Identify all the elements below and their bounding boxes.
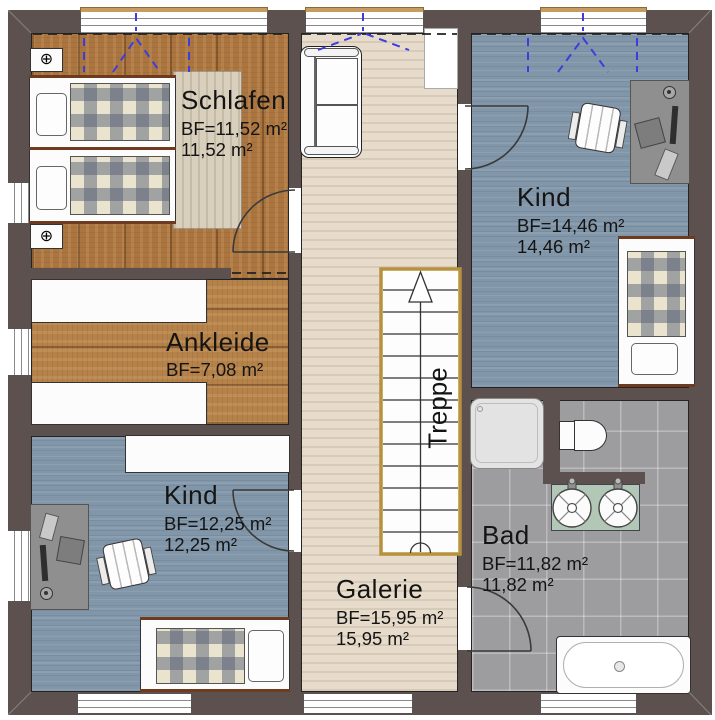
wall-bad-stub-vertical bbox=[543, 400, 560, 477]
sofa-cushion bbox=[316, 105, 358, 152]
door-opening-bad[interactable] bbox=[458, 587, 471, 650]
window-bottom-bad[interactable] bbox=[540, 694, 637, 713]
bed-rail bbox=[29, 75, 176, 78]
desk-lamp-icon bbox=[663, 86, 676, 99]
room-label-kind-bottom-left: Kind BF=12,25 m² 12,25 m² bbox=[164, 481, 271, 556]
blanket bbox=[627, 251, 686, 337]
mattress bbox=[70, 156, 170, 215]
room-bf: BF=14,46 m² bbox=[517, 215, 624, 236]
bed-rail bbox=[29, 221, 176, 224]
window-bottom-kind[interactable] bbox=[77, 694, 192, 713]
sofa-armrest bbox=[304, 48, 359, 57]
shower[interactable] bbox=[470, 398, 544, 469]
door-opening-schlafen[interactable] bbox=[289, 188, 301, 253]
window-bottom-galerie[interactable] bbox=[303, 694, 413, 713]
bathtub-drain-icon bbox=[614, 661, 625, 672]
room-name: Kind bbox=[164, 481, 271, 509]
room-bf: BF=12,25 m² bbox=[164, 513, 271, 534]
sofa-armrest bbox=[304, 146, 359, 155]
wall-bad-stub-horizontal bbox=[543, 472, 645, 484]
office-chair[interactable] bbox=[566, 96, 631, 161]
room-label-ankleide: Ankleide BF=7,08 m² bbox=[166, 328, 270, 380]
bed-rail bbox=[618, 236, 695, 239]
door-opening-kind-bottom-left[interactable] bbox=[289, 490, 301, 552]
room-bf: BF=7,08 m² bbox=[166, 359, 270, 380]
window-top-schlafen[interactable] bbox=[80, 12, 268, 33]
lamp-icon: ⊕ bbox=[40, 51, 53, 68]
office-chair[interactable] bbox=[93, 531, 159, 597]
room-name: Galerie bbox=[336, 575, 443, 603]
stairs-label: Treppe bbox=[423, 367, 454, 448]
sofa-cushion bbox=[316, 58, 358, 105]
nightstand[interactable]: ⊕ bbox=[30, 48, 63, 72]
room-bf: BF=11,52 m² bbox=[181, 118, 287, 139]
room-area: 11,82 m² bbox=[482, 574, 588, 595]
window-left-schlafen[interactable] bbox=[8, 182, 31, 224]
pillow bbox=[631, 343, 678, 375]
room-area: 14,46 m² bbox=[517, 236, 624, 257]
wardrobe[interactable] bbox=[125, 435, 290, 473]
chair-seat bbox=[102, 537, 151, 590]
room-label-kind-top-right: Kind BF=14,46 m² 14,46 m² bbox=[517, 183, 624, 258]
sofa[interactable] bbox=[300, 46, 362, 158]
room-label-bad: Bad BF=11,82 m² 11,82 m² bbox=[482, 521, 588, 596]
room-label-galerie: Galerie BF=15,95 m² 15,95 m² bbox=[336, 575, 443, 650]
room-bf: BF=11,82 m² bbox=[482, 553, 588, 574]
wall-galerie-right-mid bbox=[458, 170, 471, 587]
shower-tray bbox=[475, 403, 538, 463]
blanket bbox=[156, 628, 245, 684]
wall-schlafen-ankleide bbox=[31, 268, 231, 279]
chair-seat bbox=[574, 102, 621, 154]
desk-chair[interactable] bbox=[56, 536, 85, 565]
pillow bbox=[36, 93, 67, 136]
floor-plan-canvas: { "plan": { "title": "Obergeschoss Grund… bbox=[0, 0, 715, 720]
room-label-schlafen: Schlafen BF=11,52 m² 11,52 m² bbox=[181, 86, 287, 161]
toilet-bowl[interactable] bbox=[574, 420, 607, 451]
wall-galerie-right-upper bbox=[458, 33, 471, 104]
bed-rail bbox=[140, 689, 290, 692]
bathtub[interactable] bbox=[556, 636, 691, 694]
lamp-icon: ⊕ bbox=[40, 228, 53, 245]
shower-drain-icon bbox=[477, 406, 483, 412]
window-top-kind[interactable] bbox=[540, 12, 647, 33]
window-left-kind[interactable] bbox=[8, 530, 31, 602]
mattress bbox=[70, 83, 170, 141]
nightstand[interactable]: ⊕ bbox=[30, 224, 63, 249]
room-name: Kind bbox=[517, 183, 624, 211]
wall-galerie-right-lower bbox=[458, 650, 471, 692]
wall-galerie-left-lower bbox=[289, 552, 301, 692]
pillow bbox=[36, 166, 67, 210]
room-name: Schlafen bbox=[181, 86, 287, 114]
bed-rail bbox=[29, 147, 176, 150]
room-area: 15,95 m² bbox=[336, 628, 443, 649]
desk-lamp-icon bbox=[40, 587, 53, 600]
pillow bbox=[248, 630, 284, 682]
room-area: 12,25 m² bbox=[164, 534, 271, 555]
bed-rail bbox=[140, 617, 290, 620]
room-area: 11,52 m² bbox=[181, 139, 287, 160]
room-name: Bad bbox=[482, 521, 588, 549]
closet[interactable] bbox=[31, 382, 207, 425]
shelf[interactable] bbox=[424, 28, 458, 89]
bed-rail bbox=[618, 384, 695, 387]
wall-galerie-left-mid bbox=[289, 253, 301, 490]
closet[interactable] bbox=[31, 279, 207, 323]
door-opening-kind-top-right[interactable] bbox=[458, 104, 471, 170]
window-top-galerie[interactable] bbox=[305, 12, 424, 33]
window-left-ankleide[interactable] bbox=[8, 328, 31, 376]
room-bf: BF=15,95 m² bbox=[336, 607, 443, 628]
room-name: Ankleide bbox=[166, 328, 270, 356]
